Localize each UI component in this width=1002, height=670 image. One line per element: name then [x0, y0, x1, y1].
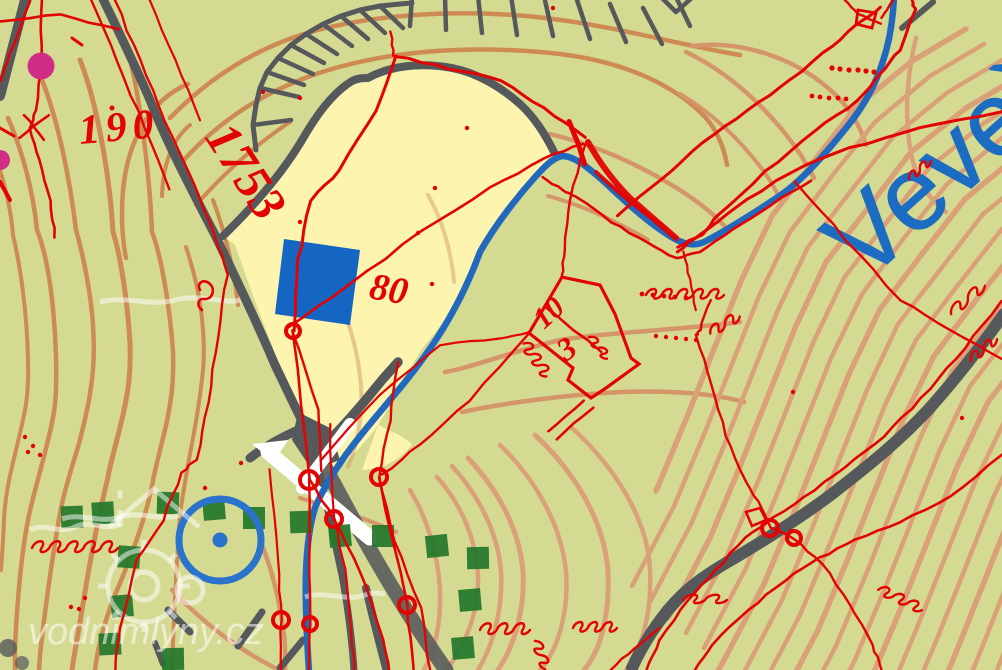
svg-text:80: 80 — [366, 266, 411, 314]
svg-text:vodnimlyny.cz: vodnimlyny.cz — [28, 611, 264, 653]
svg-text:190: 190 — [77, 101, 162, 154]
